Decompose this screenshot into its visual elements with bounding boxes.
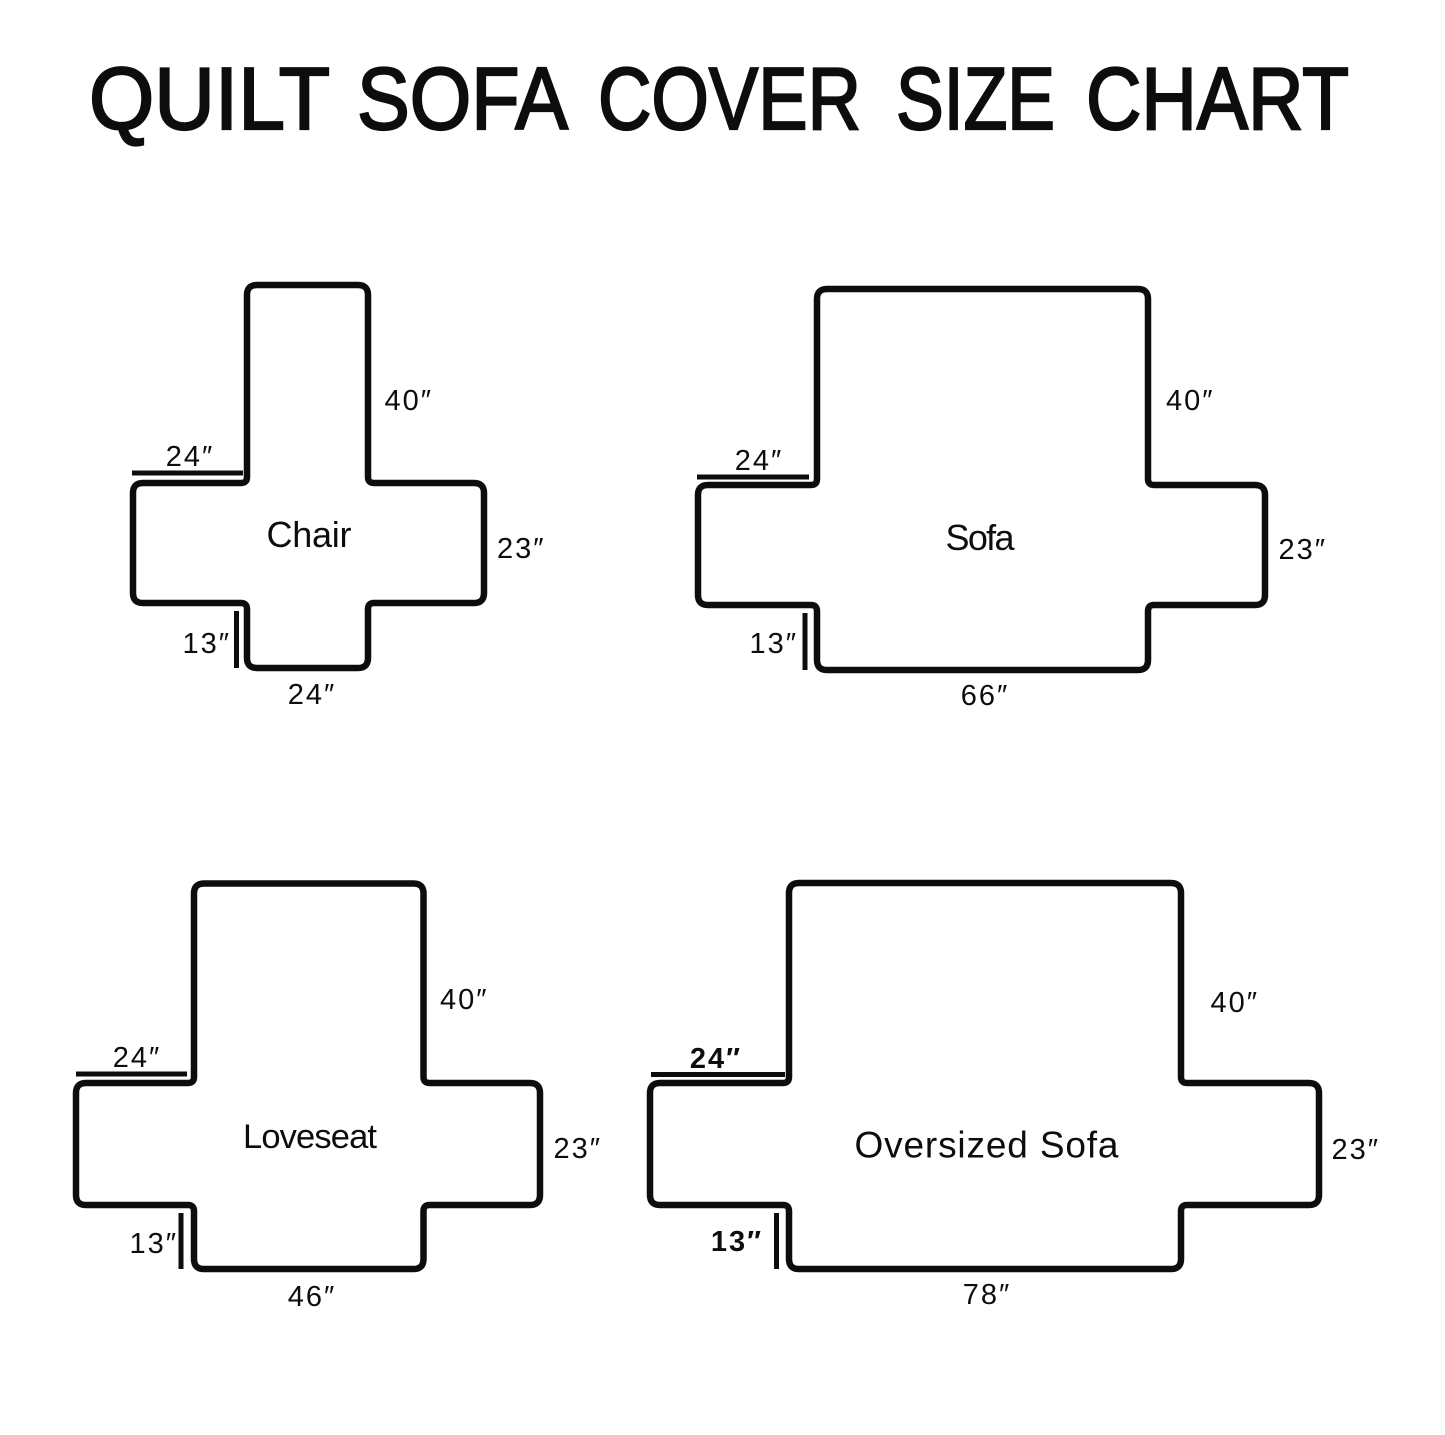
svg-text:23″: 23″ [1332, 1134, 1381, 1166]
svg-text:Sofa: Sofa [946, 517, 1016, 558]
svg-text:40″: 40″ [385, 385, 434, 417]
svg-text:SOFA: SOFA [357, 49, 568, 148]
svg-text:Oversized Sofa: Oversized Sofa [855, 1125, 1119, 1166]
svg-text:24″: 24″ [288, 679, 337, 711]
svg-text:24″: 24″ [735, 445, 784, 477]
svg-text:Loveseat: Loveseat [243, 1118, 377, 1156]
svg-text:24″: 24″ [113, 1042, 162, 1074]
svg-text:40″: 40″ [440, 984, 489, 1016]
svg-text:40″: 40″ [1211, 987, 1260, 1019]
svg-text:CHART: CHART [1086, 49, 1349, 148]
svg-text:24″: 24″ [690, 1043, 742, 1075]
svg-text:COVER: COVER [598, 49, 861, 148]
svg-text:23″: 23″ [497, 533, 546, 565]
svg-text:13″: 13″ [749, 628, 798, 660]
svg-text:78″: 78″ [963, 1279, 1012, 1311]
svg-text:13″: 13″ [129, 1228, 178, 1260]
svg-text:13″: 13″ [711, 1226, 763, 1258]
svg-text:Chair: Chair [267, 514, 352, 555]
svg-text:40″: 40″ [1166, 385, 1215, 417]
svg-text:46″: 46″ [288, 1281, 337, 1313]
svg-text:QUILT: QUILT [89, 49, 330, 148]
svg-text:66″: 66″ [961, 680, 1010, 712]
svg-text:24″: 24″ [166, 441, 215, 473]
svg-text:23″: 23″ [1279, 534, 1328, 566]
svg-text:23″: 23″ [554, 1133, 603, 1165]
svg-text:13″: 13″ [182, 628, 231, 660]
svg-text:SIZE: SIZE [896, 49, 1055, 148]
